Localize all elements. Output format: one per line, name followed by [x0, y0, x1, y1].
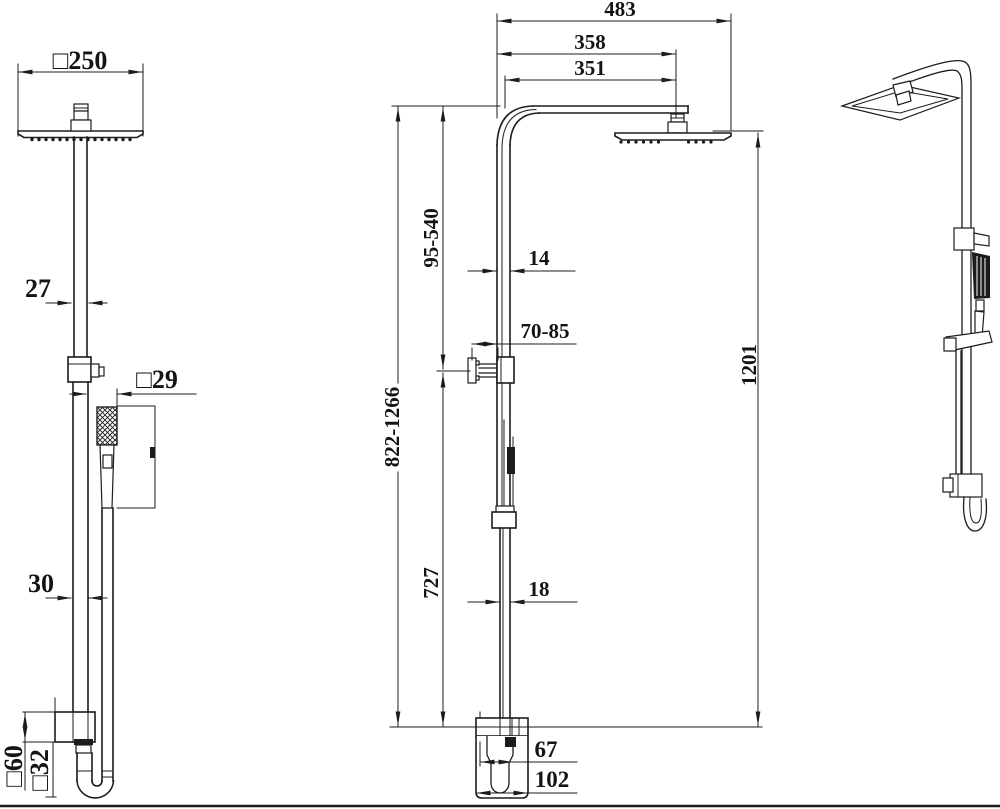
side-shower-head [615, 114, 731, 144]
dim-height-1201: 1201 [713, 131, 763, 726]
dim-label-60: □60 [0, 745, 28, 787]
dim-tube-18: 18 [468, 577, 577, 602]
front-view: □250 27 □29 [0, 46, 196, 798]
dim-label-250: □250 [53, 46, 108, 75]
front-riser-upper [74, 137, 87, 357]
front-shower-head [18, 104, 143, 141]
persp-bracket-knob [974, 233, 989, 246]
outlet-port [505, 737, 516, 747]
dim-label-67: 67 [535, 737, 558, 762]
dim-label-1201: 1201 [737, 344, 761, 386]
dim-bracket-70-85: 70-85 [472, 319, 576, 360]
front-hand-shower [97, 407, 117, 781]
slider-knob [91, 364, 99, 377]
persp-pipe [893, 61, 971, 478]
dim-label-18: 18 [529, 577, 550, 601]
shower-system-drawing: □250 27 □29 [0, 0, 1000, 809]
hose-nut [74, 739, 93, 745]
side-wall-bracket [468, 357, 514, 383]
bracket-pipe-clamp [497, 357, 514, 383]
front-supply-block [55, 698, 114, 798]
dim-label-351: 351 [574, 56, 606, 80]
dim-height-822-1266: 822-1266 [380, 107, 404, 726]
persp-hose-u [964, 497, 987, 531]
persp-holder [944, 331, 992, 477]
hand-shower-button [103, 455, 112, 468]
perspective-view [842, 61, 992, 531]
dim-travel-95-540: 95-540 [419, 107, 470, 371]
dim-label-27: 27 [25, 274, 51, 303]
hand-shower-extent [117, 406, 155, 508]
front-head-nozzles [30, 138, 131, 141]
technical-drawing-canvas: □250 27 □29 [0, 0, 1000, 809]
dim-tube-14: 14 [468, 246, 575, 271]
hose-u-bend [77, 781, 114, 798]
side-view: 483 358 351 95-540 [380, 0, 763, 798]
dim-label-102: 102 [535, 767, 570, 792]
dim-label-822-1266: 822-1266 [380, 387, 404, 468]
head-swivel-base [71, 120, 91, 131]
dim-label-14: 14 [529, 246, 551, 270]
dim-label-95-540: 95-540 [419, 208, 443, 268]
side-mixer-body [476, 712, 528, 798]
front-riser-lower [73, 382, 88, 712]
pipe-coupling [492, 512, 516, 528]
dim-pipe-30: 30 [28, 569, 107, 598]
dim-reach-351: 351 [505, 56, 676, 108]
persp-hand-shower [972, 252, 990, 338]
persp-diverter [943, 474, 986, 531]
dim-label-32: □32 [25, 749, 54, 791]
side-holder-mark [507, 447, 515, 474]
persp-wall-bracket [954, 228, 989, 250]
side-riser-pipe [492, 145, 516, 718]
dim-label-358: 358 [574, 30, 606, 54]
hand-shower-face [97, 407, 117, 445]
dim-reach-483: 483 [497, 0, 731, 130]
dim-label-70-85: 70-85 [521, 319, 570, 343]
dim-height-727: 727 [419, 373, 443, 726]
dim-label-483: 483 [604, 0, 636, 21]
mixer-housing [476, 736, 528, 798]
persp-shower-button [976, 300, 984, 311]
persp-shower-head [842, 81, 959, 120]
dim-pipe-27: 27 [25, 274, 107, 303]
dim-label-30: 30 [28, 569, 54, 598]
side-head-nozzles [619, 140, 712, 143]
dim-nut-32: □32 [25, 742, 56, 797]
dim-label-29: □29 [136, 365, 178, 394]
dim-label-727: 727 [419, 567, 443, 599]
front-slider-bracket [68, 357, 104, 382]
